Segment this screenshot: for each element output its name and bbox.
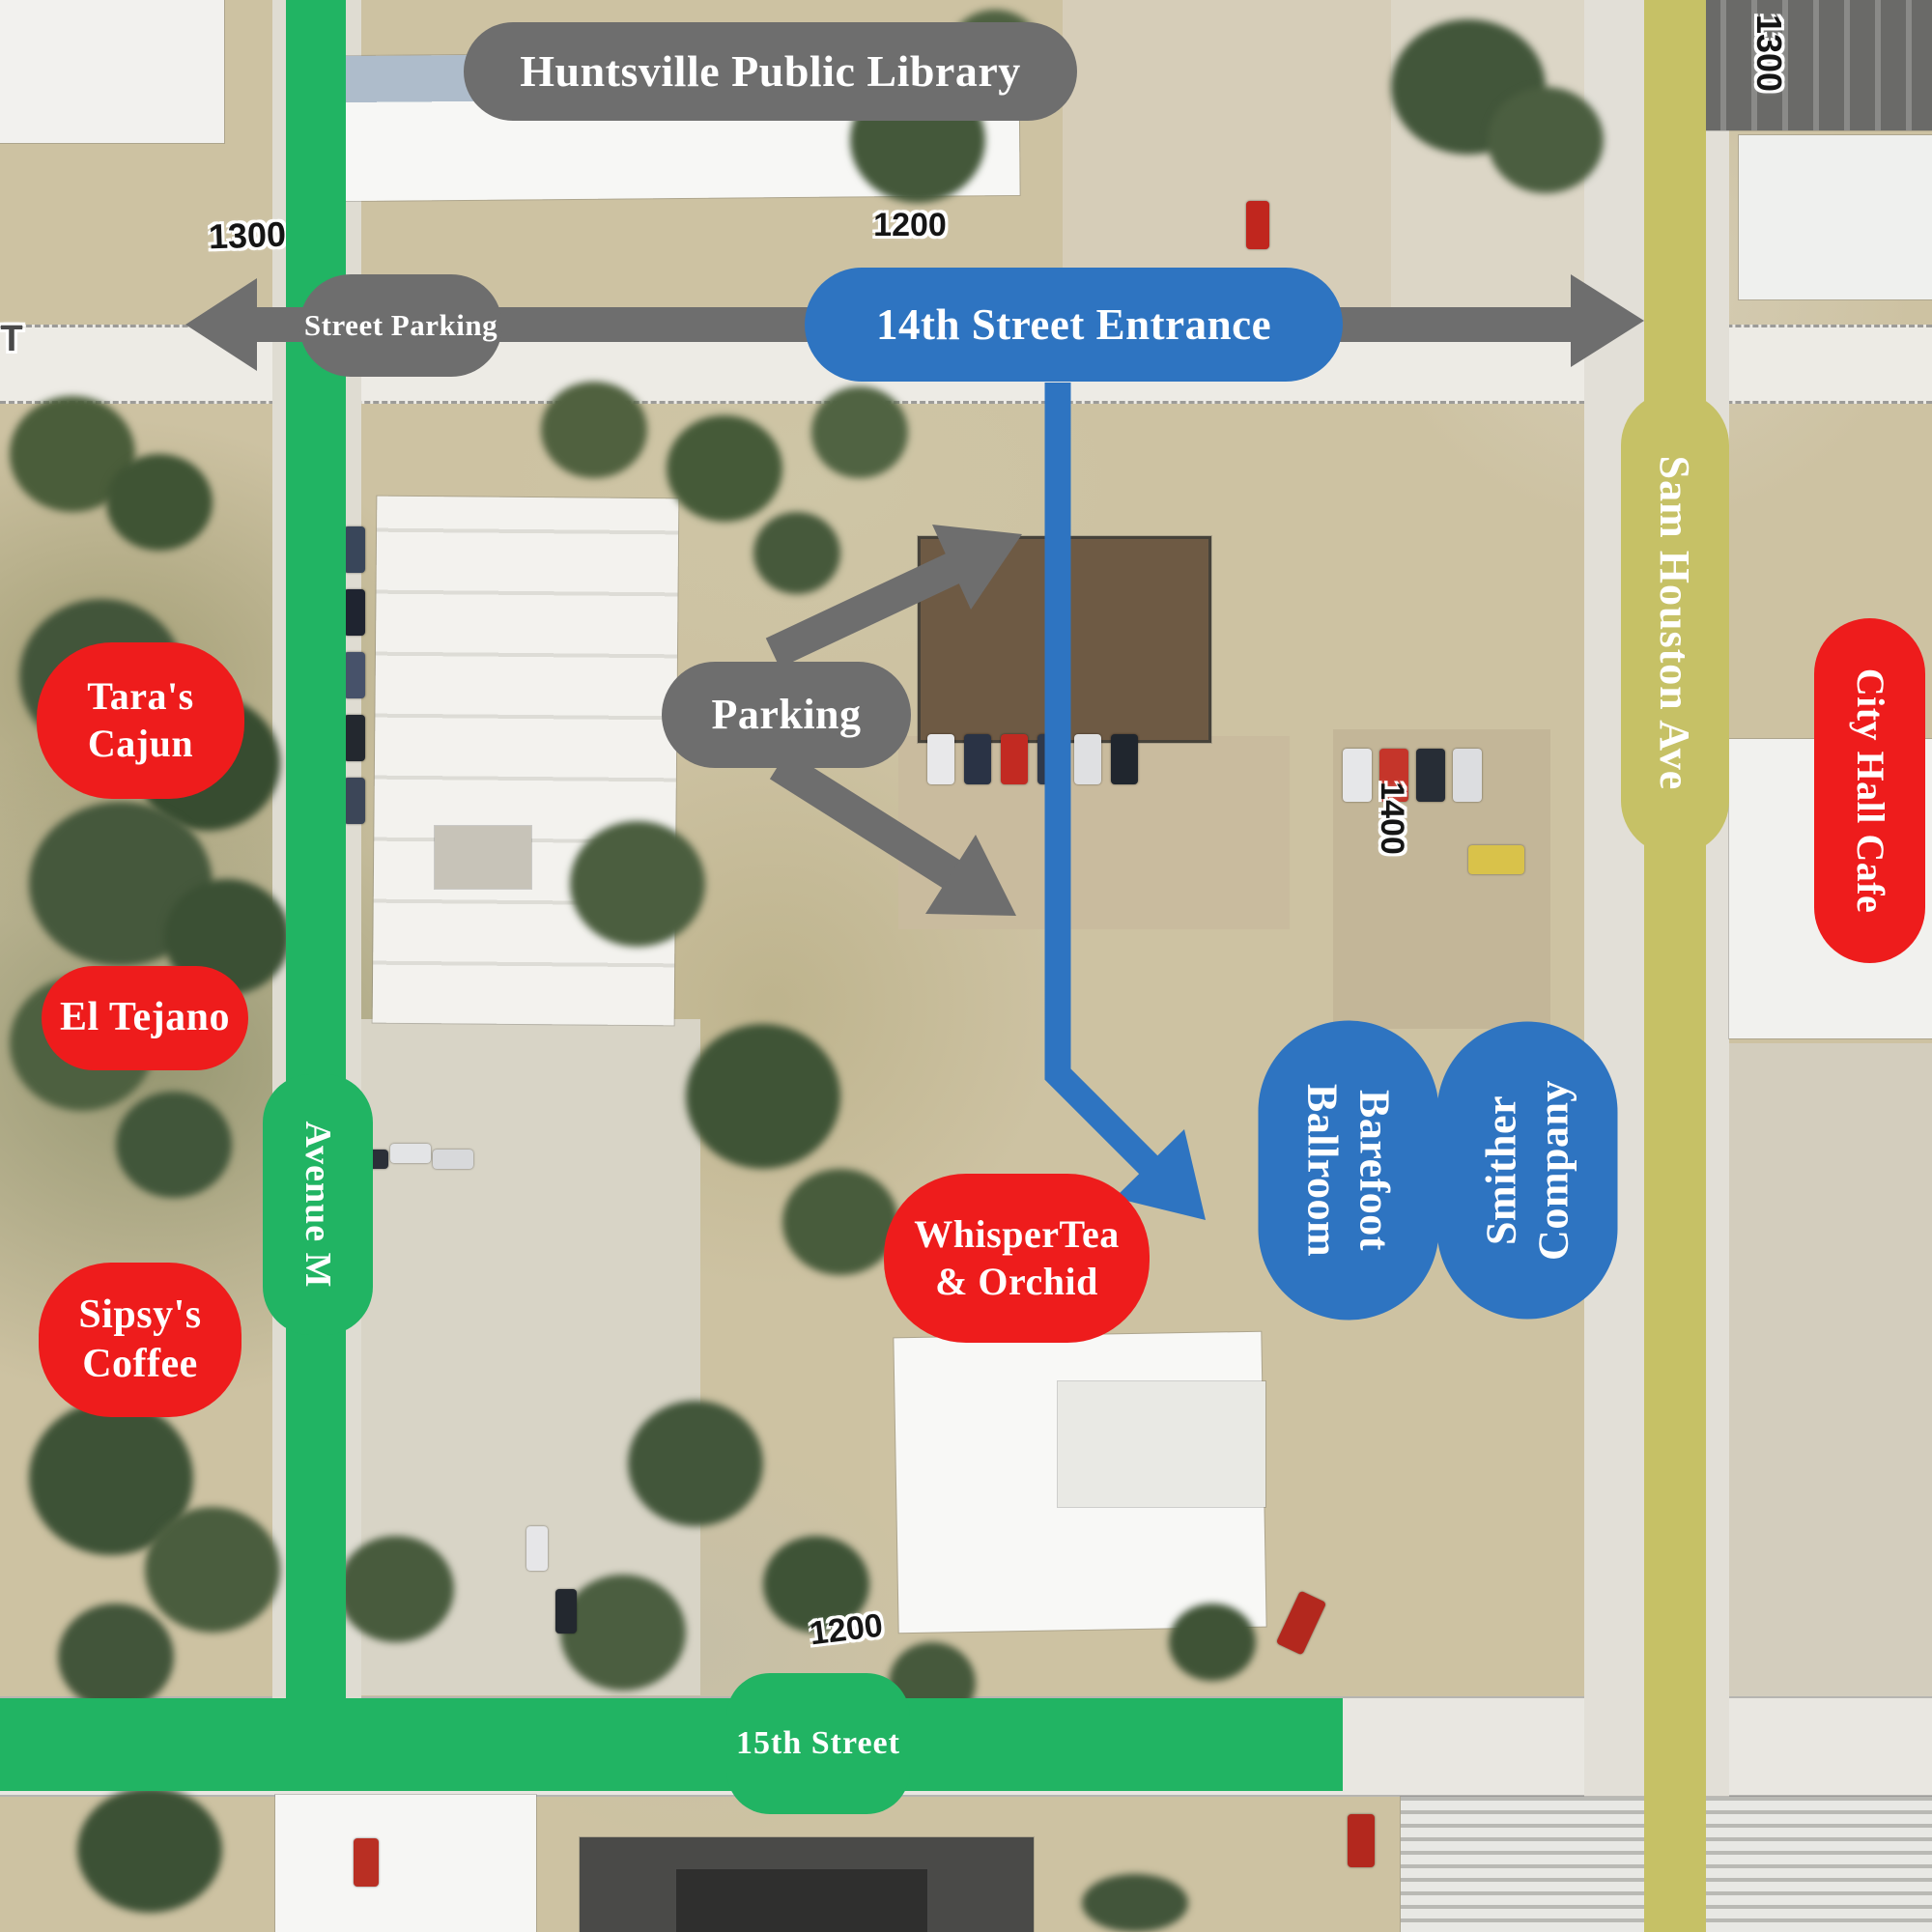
barefoot-ballroom-label-text: BarefootBallroom: [1296, 1084, 1400, 1257]
fifteenth-street-road-bar: [0, 1698, 1343, 1791]
building: [1739, 135, 1932, 299]
tree: [145, 1507, 280, 1633]
tree: [570, 821, 705, 947]
car: [1074, 734, 1101, 784]
tree: [58, 1604, 174, 1710]
tree: [753, 512, 840, 594]
car: [1037, 734, 1065, 784]
tree: [541, 382, 647, 478]
sam-houston-road-name: Sam Houston Ave: [1621, 391, 1729, 855]
whispertea-label: WhisperTea& Orchid: [884, 1174, 1150, 1343]
car: [927, 734, 954, 784]
block-number-1300-left: 1300: [202, 213, 292, 258]
building-annex: [1058, 1381, 1265, 1507]
fifteenth-street-road-name-text: 15th Street: [736, 1725, 900, 1762]
tree: [116, 1092, 232, 1198]
street-parking-label-text: Street Parking: [304, 307, 497, 344]
tree: [782, 1169, 898, 1275]
tree: [560, 1575, 686, 1690]
sipsys-coffee-label-text: Sipsy'sCoffee: [78, 1291, 201, 1389]
block-number-1400-right: 1400: [1373, 770, 1411, 867]
tree: [1169, 1604, 1256, 1681]
car: [1453, 749, 1482, 802]
annotated-aerial-map: 1300 1200 1200 1300 1400 1400 T Huntsvil…: [0, 0, 1932, 1932]
avenue-m-road-bar: [286, 0, 346, 1700]
car: [433, 1150, 473, 1169]
avenue-m-road-name: Avenue M: [263, 1074, 373, 1335]
car-red: [1246, 201, 1269, 249]
car: [1001, 734, 1028, 784]
sam-houston-road-name-text: Sam Houston Ave: [1651, 456, 1700, 791]
sipsys-coffee-label: Sipsy'sCoffee: [39, 1263, 241, 1417]
building-dark-roof: [676, 1869, 927, 1932]
car: [344, 778, 365, 824]
block-letter-t-edge: T: [0, 319, 31, 359]
city-hall-cafe-label-text: City Hall Cafe: [1846, 668, 1893, 914]
smither-company-label: SmitherCompany: [1437, 1022, 1618, 1320]
taras-cajun-label-text: Tara'sCajun: [87, 673, 193, 768]
smither-company-label-text: SmitherCompany: [1475, 1080, 1578, 1261]
tree: [811, 386, 908, 478]
car: [1343, 749, 1372, 802]
tree: [77, 1787, 222, 1913]
car-yellow: [1468, 845, 1524, 874]
taras-cajun-label: Tara'sCajun: [37, 642, 244, 799]
building-shed: [435, 826, 531, 889]
building: [0, 0, 224, 143]
car: [526, 1526, 548, 1571]
el-tejano-label: El Tejano: [42, 966, 248, 1070]
tree: [1082, 1874, 1188, 1932]
tree: [686, 1024, 840, 1169]
building-brown-roof: [918, 536, 1211, 743]
tree: [667, 415, 782, 522]
tree: [338, 1536, 454, 1642]
building: [1695, 0, 1932, 130]
entrance-14th-label: 14th Street Entrance: [805, 268, 1343, 382]
car: [344, 652, 365, 698]
car: [555, 1589, 577, 1634]
street-parking-label: Street Parking: [299, 274, 502, 377]
fifteenth-street-road-name: 15th Street: [726, 1673, 910, 1814]
building: [275, 1795, 536, 1932]
block-number-1300-right: 1300: [1749, 5, 1788, 101]
tree: [1488, 87, 1604, 193]
city-hall-cafe-label: City Hall Cafe: [1814, 618, 1925, 963]
block-number-1200-top: 1200: [867, 205, 952, 245]
car: [1416, 749, 1445, 802]
whispertea-label-text: WhisperTea& Orchid: [914, 1211, 1119, 1306]
sam-houston-road-bar: [1644, 0, 1706, 1932]
car: [1348, 1814, 1375, 1867]
parking-label: Parking: [662, 662, 911, 768]
car: [344, 589, 365, 636]
entrance-14th-label-text: 14th Street Entrance: [876, 298, 1271, 352]
car: [964, 734, 991, 784]
tree: [106, 454, 213, 551]
car-red: [354, 1838, 379, 1887]
car: [344, 526, 365, 573]
el-tejano-label-text: El Tejano: [60, 993, 230, 1042]
barefoot-ballroom-label: BarefootBallroom: [1259, 1021, 1439, 1321]
car: [344, 715, 365, 761]
library-label-text: Huntsville Public Library: [520, 44, 1021, 99]
car: [390, 1144, 431, 1163]
library-label: Huntsville Public Library: [464, 22, 1077, 121]
car: [1111, 734, 1138, 784]
parking-label-text: Parking: [711, 689, 861, 741]
car-red: [1276, 1590, 1327, 1655]
tree: [628, 1401, 763, 1526]
avenue-m-road-name-text: Avenue M: [297, 1122, 339, 1289]
